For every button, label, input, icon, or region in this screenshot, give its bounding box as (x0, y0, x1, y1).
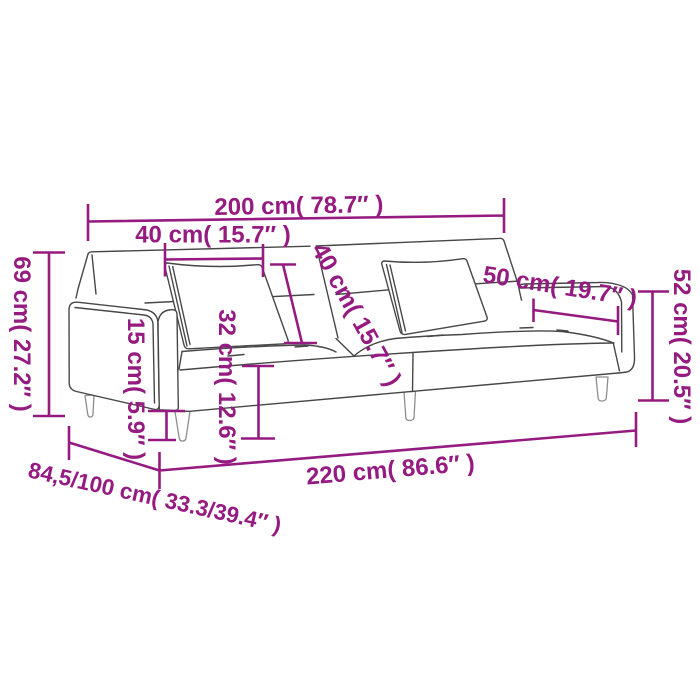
svg-text:32 cm( 12.6″ ): 32 cm( 12.6″ ) (213, 309, 240, 465)
svg-text:200 cm( 78.7″ ): 200 cm( 78.7″ ) (214, 191, 383, 221)
svg-text:69 cm( 27.2″ ): 69 cm( 27.2″ ) (8, 256, 35, 412)
svg-text:52 cm( 20.5″ ): 52 cm( 20.5″ ) (668, 269, 695, 425)
svg-text:15 cm( 5.9″ ): 15 cm( 5.9″ ) (122, 318, 149, 460)
svg-text:40 cm( 15.7″ ): 40 cm( 15.7″ ) (135, 222, 291, 249)
